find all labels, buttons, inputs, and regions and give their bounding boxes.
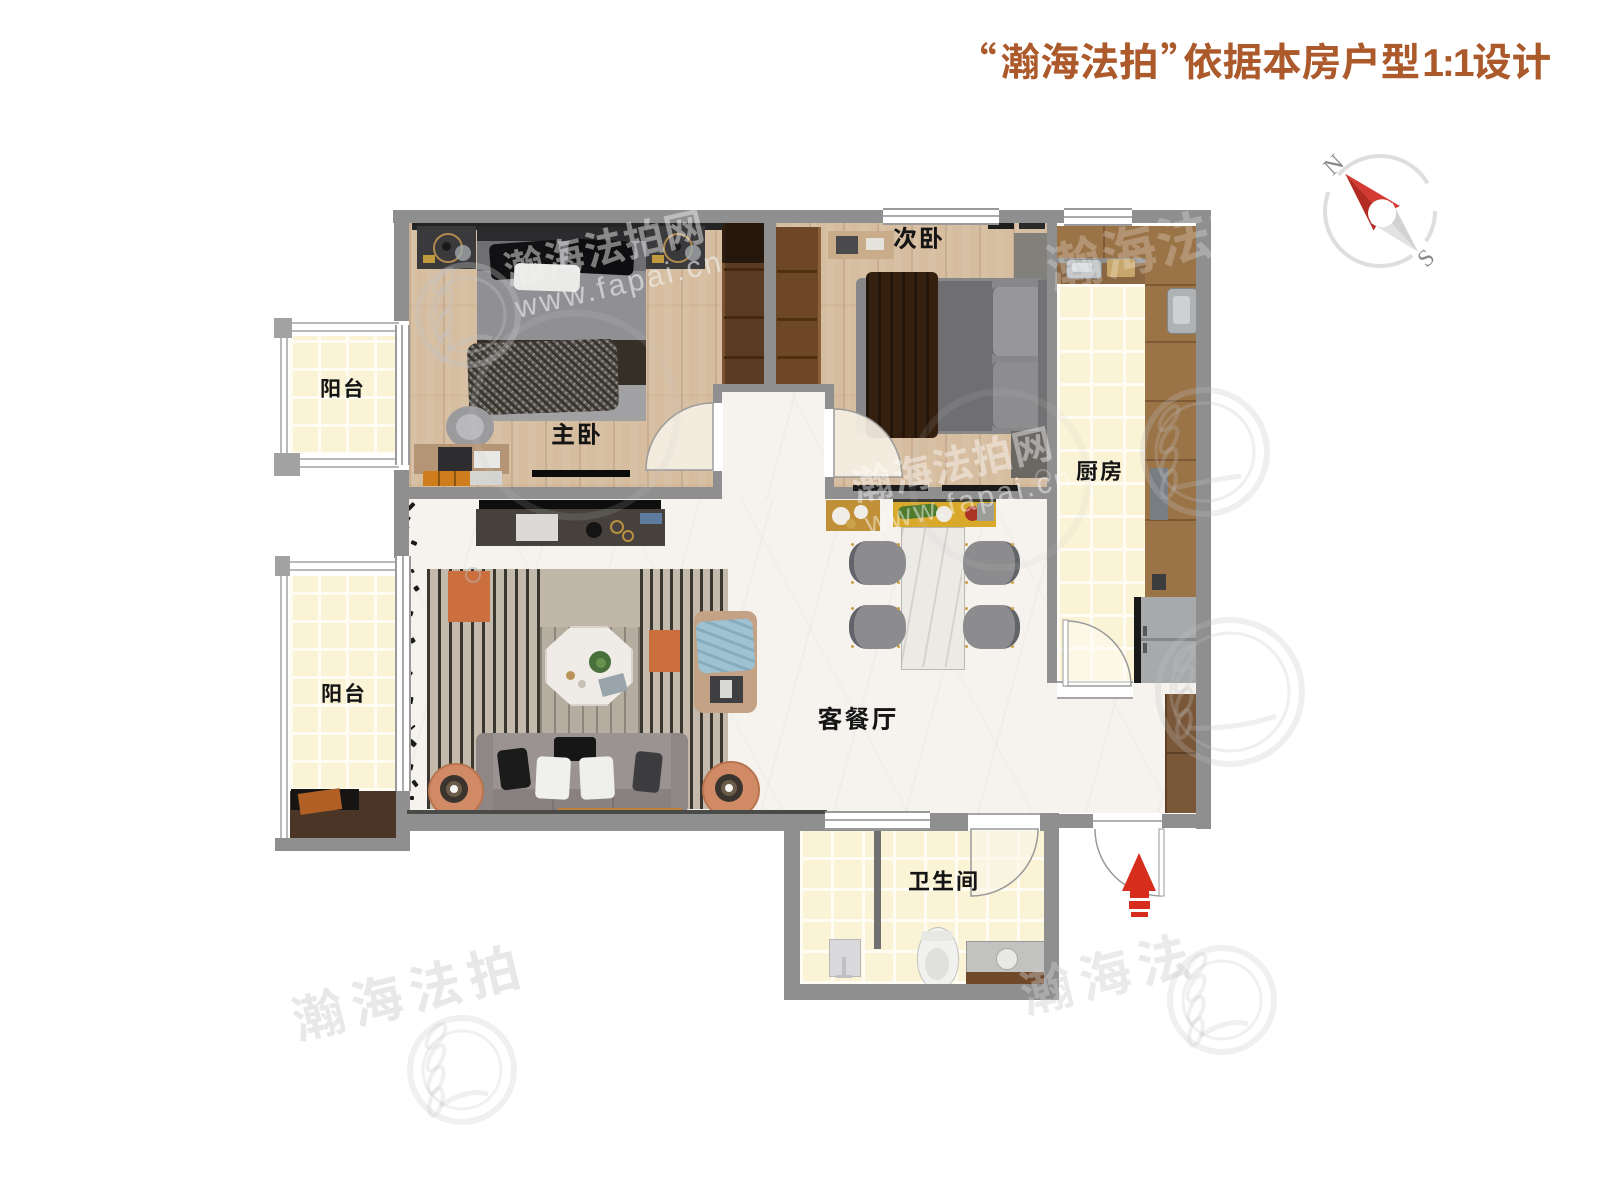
svg-text:N: N xyxy=(1319,150,1349,181)
svg-text:1:1: 1:1 xyxy=(1422,42,1474,85)
svg-text:S: S xyxy=(1413,244,1441,272)
